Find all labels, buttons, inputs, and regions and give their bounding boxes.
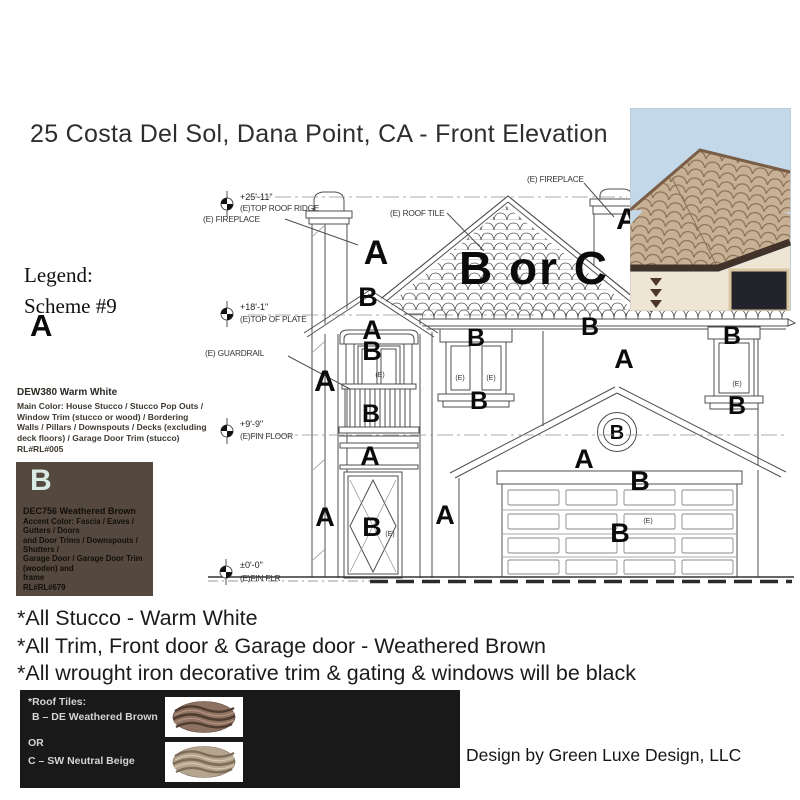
color-a-description: DEW380 Warm White Main Color: House Stuc…: [17, 388, 222, 455]
fireplace-label-right: (E) FIREPLACE: [527, 174, 585, 184]
roof-tile-or: OR: [28, 737, 44, 749]
color-a-name: DEW380 Warm White: [17, 388, 222, 399]
svg-text:+9'-9": +9'-9": [240, 419, 263, 429]
tile-photo-neutral-beige: [165, 742, 243, 782]
marker-a-garage-gable: A: [574, 444, 594, 474]
legend-letter-a: A: [30, 308, 52, 344]
marker-b-rightwindow-sill: B: [728, 392, 746, 420]
svg-text:+18'-1": +18'-1": [240, 302, 268, 312]
notes: *All Stucco - Warm White *All Trim, Fron…: [17, 605, 636, 688]
color-b-description: DEC756 Weathered Brown Accent Color: Fas…: [23, 507, 148, 592]
note-stucco: *All Stucco - Warm White: [17, 605, 636, 633]
roof-tiles-heading: *Roof Tiles:: [28, 696, 86, 708]
marker-b-midwindow-sill: B: [470, 387, 488, 415]
note-trim: *All Trim, Front door & Garage door - We…: [17, 633, 636, 661]
svg-text:(E): (E): [385, 531, 394, 538]
marker-b-garage-door: B: [610, 518, 630, 548]
marker-b-rightwindow-top: B: [723, 322, 741, 350]
legend-title: Legend:: [24, 260, 117, 291]
roof-tile-label: (E) ROOF TILE: [390, 208, 445, 218]
design-credit: Design by Green Luxe Design, LLC: [466, 745, 741, 766]
color-b-name: DEC756 Weathered Brown: [23, 507, 148, 516]
roof-reference-photo: [630, 108, 791, 311]
marker-b-front-door: B: [362, 512, 382, 542]
marker-b-fascia: B: [581, 313, 599, 341]
elevation-drawing: +25'-11" (E)TOP ROOF RIDGE (E) FIREPLACE…: [200, 100, 800, 600]
note-wrought-iron: *All wrought iron decorative trim & gati…: [17, 660, 636, 688]
swatch-letter-b: B: [30, 464, 52, 498]
svg-text:(E): (E): [732, 381, 741, 388]
marker-b-midwindow-top: B: [467, 324, 485, 352]
marker-a-pillar: A: [315, 502, 335, 532]
tile-photo-weathered-brown: [165, 697, 243, 737]
svg-text:(E)FIN FLR: (E)FIN FLR: [240, 573, 281, 583]
marker-a-wall-right: A: [614, 344, 634, 374]
right-wing: [432, 327, 786, 578]
datum-plate: +18'-1" (E)TOP OF PLATE: [221, 301, 307, 327]
datum-floor2: +9'-9" (E)FIN FLOOR: [221, 418, 293, 444]
marker-b-or-c-roof: B or C: [459, 242, 609, 294]
fireplace-label-left: (E) FIREPLACE: [203, 214, 261, 224]
marker-b-balcony-header: B: [362, 336, 382, 366]
svg-text:(E): (E): [455, 375, 464, 382]
svg-text:(E): (E): [486, 375, 495, 382]
ground-line: [208, 577, 794, 582]
roof-tile-option-c: C – SW Neutral Beige: [28, 755, 135, 767]
marker-b-guardrail: B: [362, 400, 380, 428]
marker-b-tower-roof: B: [358, 282, 378, 312]
svg-text:(E)TOP ROOF RIDGE: (E)TOP ROOF RIDGE: [240, 203, 320, 213]
svg-text:(E): (E): [643, 518, 652, 525]
svg-text:(E)TOP OF PLATE: (E)TOP OF PLATE: [240, 314, 307, 324]
roof-tiles-box: *Roof Tiles: B – DE Weathered Brown OR C…: [20, 690, 460, 788]
guardrail-label: (E) GUARDRAIL: [205, 348, 265, 358]
marker-b-vent: B: [610, 422, 624, 444]
marker-a-transom: A: [360, 441, 380, 471]
svg-text:±0'-0": ±0'-0": [240, 560, 263, 570]
marker-b-garage-header: B: [630, 466, 650, 496]
svg-text:(E)FIN FLOOR: (E)FIN FLOOR: [240, 431, 293, 441]
marker-a-chimney: A: [364, 234, 389, 272]
roof-tile-option-b: B – DE Weathered Brown: [32, 711, 158, 723]
marker-a-wall-left: A: [314, 365, 336, 398]
svg-text:(E): (E): [375, 372, 384, 379]
color-b-swatch: B DEC756 Weathered Brown Accent Color: F…: [16, 462, 153, 596]
marker-a-wall-mid: A: [435, 500, 455, 530]
